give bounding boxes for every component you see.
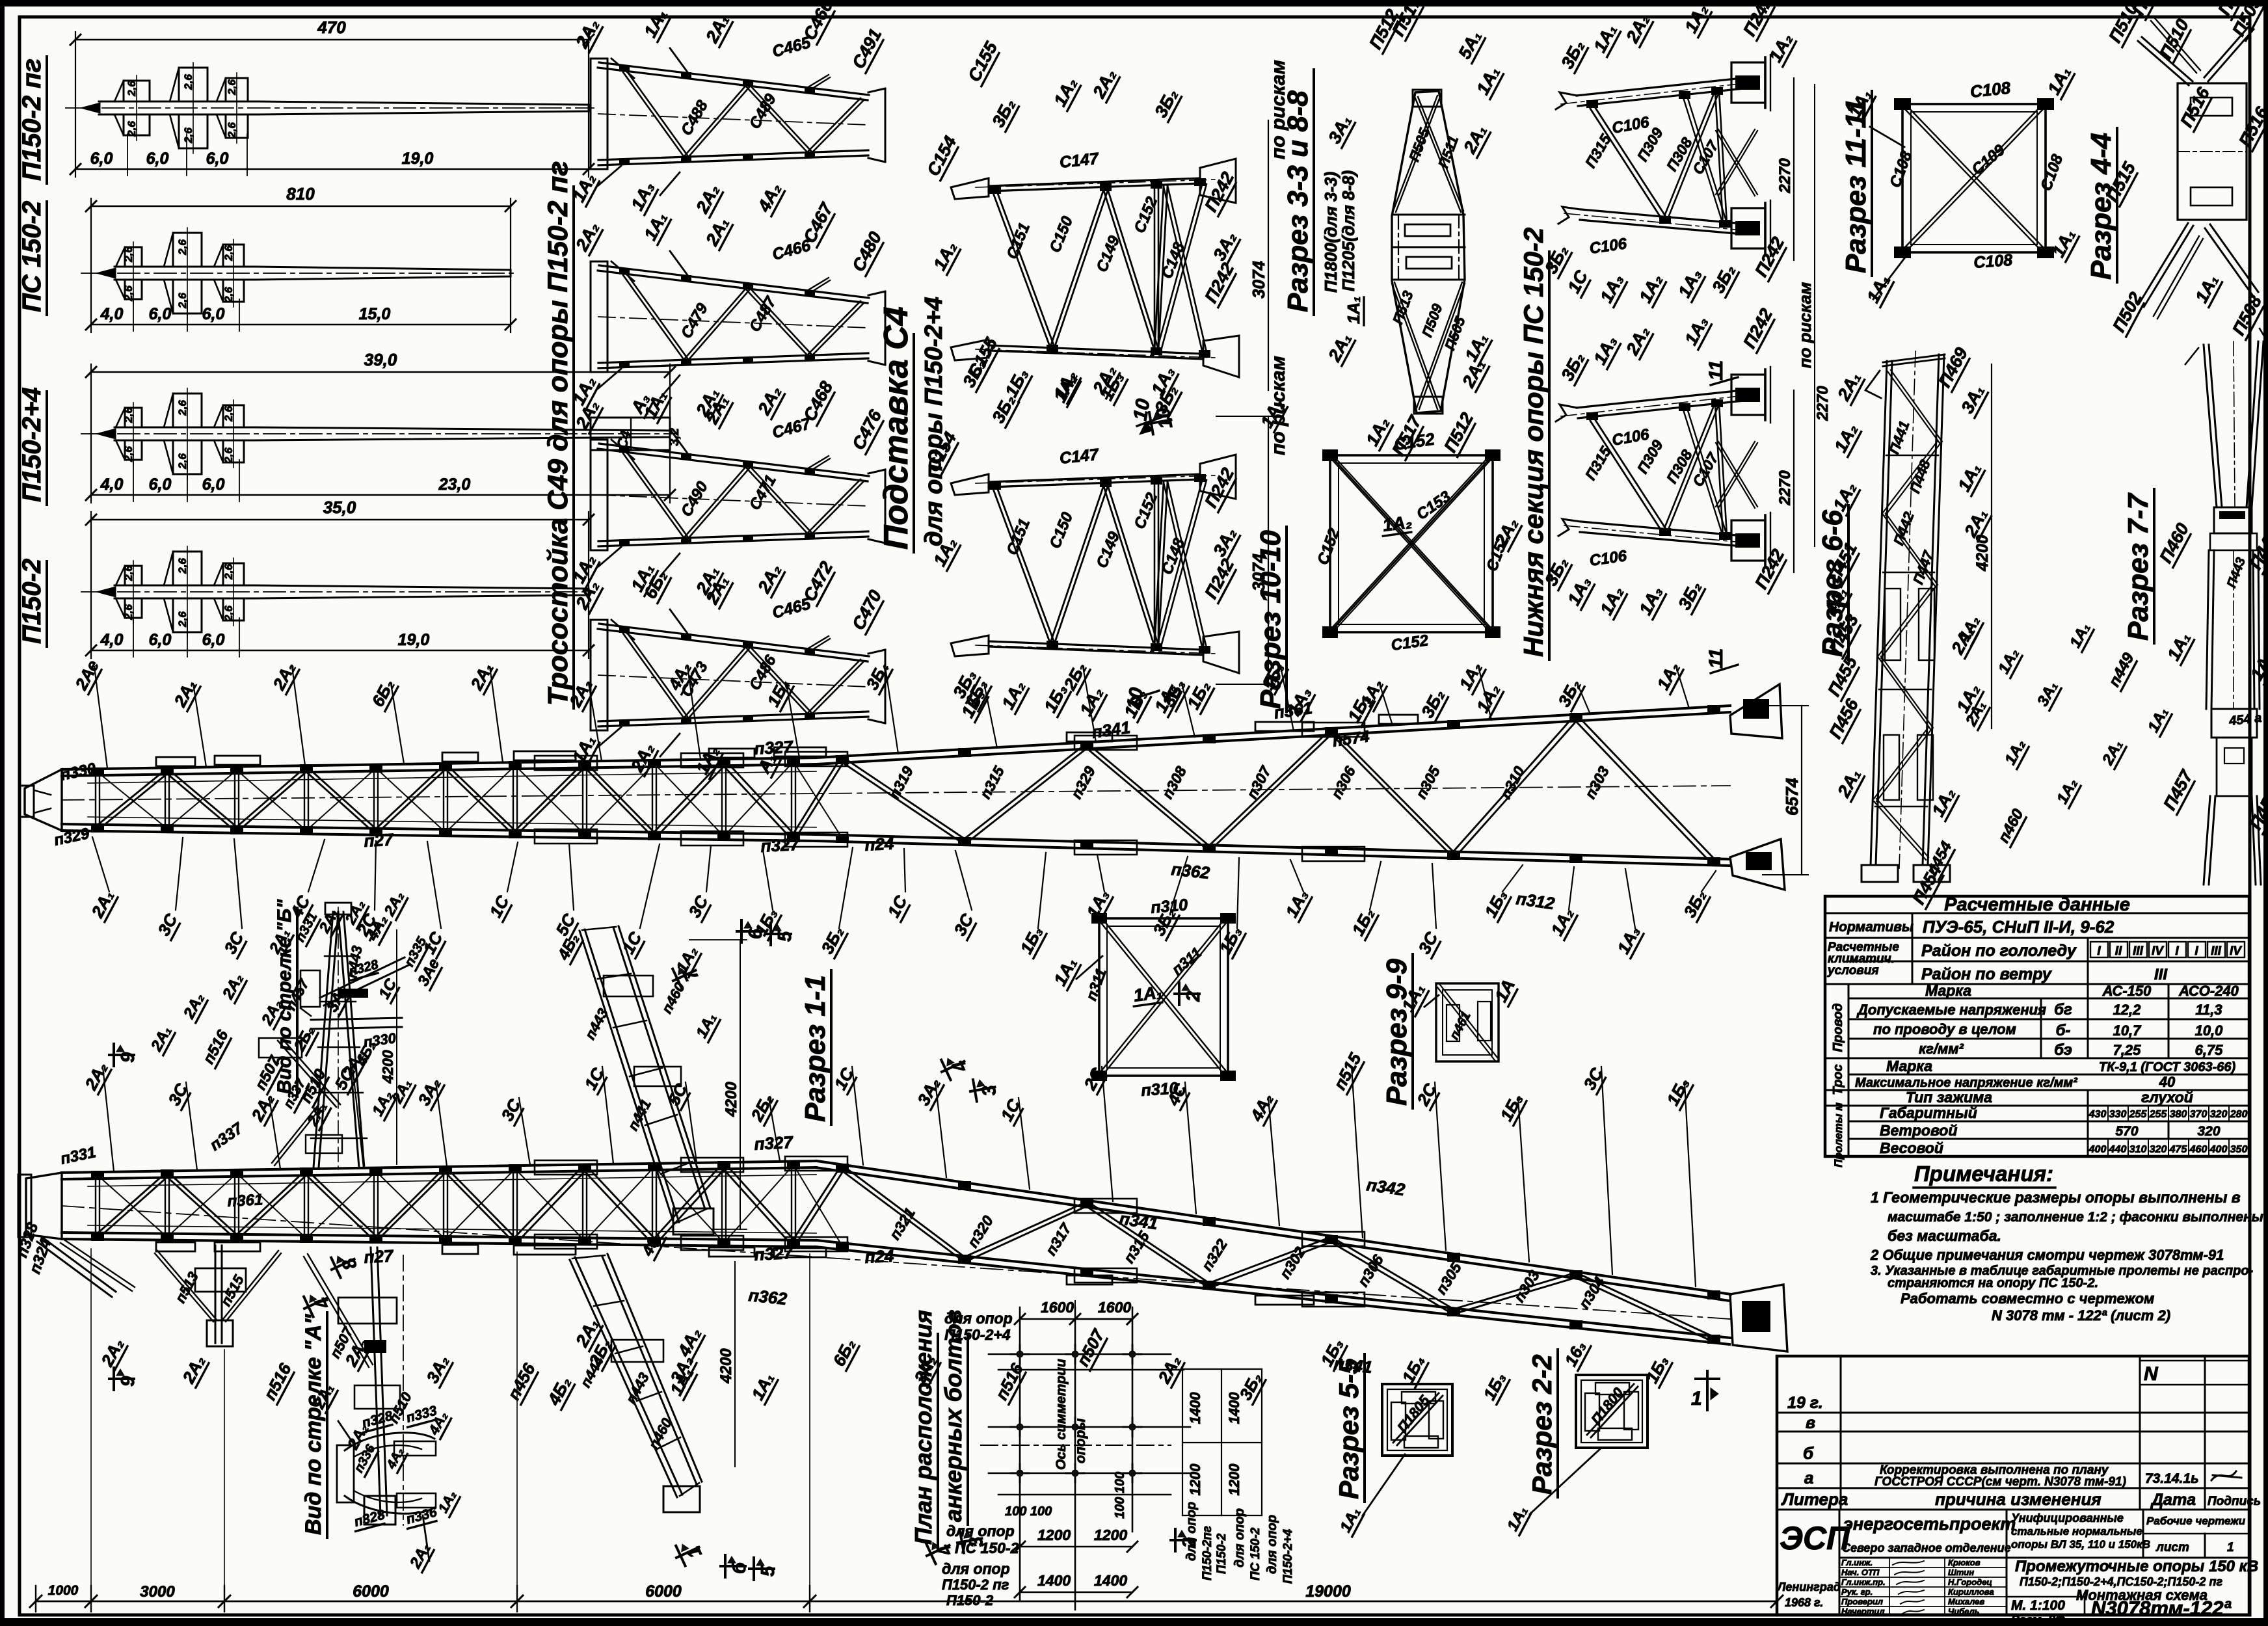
svg-text:П150-2+4: П150-2+4 [1281, 1529, 1295, 1584]
svg-text:п327: п327 [754, 1243, 794, 1264]
svg-text:ПС 150-2: ПС 150-2 [18, 201, 46, 312]
svg-text:6: 6 [745, 928, 766, 939]
svg-text:2 Общие примечания смотри: 2 Общие примечания смотри чертеж 3078тм-… [1870, 1247, 2224, 1263]
svg-text:5: 5 [775, 931, 795, 942]
svg-text:810: 810 [286, 184, 315, 204]
svg-text:ГОССТРОЯ СССР(см черт. N3078: ГОССТРОЯ СССР(см черт. N3078 тм-91) [1874, 1475, 2126, 1489]
svg-text:2,6: 2,6 [122, 565, 135, 581]
svg-text:6,75: 6,75 [2195, 1042, 2224, 1058]
svg-text:570: 570 [2115, 1124, 2138, 1139]
svg-text:1: 1 [2227, 1541, 2234, 1554]
svg-text:2: 2 [1183, 991, 1204, 1002]
svg-text:Штин: Штин [1948, 1567, 1974, 1577]
svg-text:Крюков: Крюков [1948, 1558, 1981, 1567]
svg-text:350: 350 [2230, 1144, 2248, 1155]
svg-text:11: 11 [1705, 360, 1727, 380]
svg-text:1200: 1200 [1226, 1463, 1242, 1496]
svg-text:П1800(для 3-3): П1800(для 3-3) [1321, 172, 1341, 293]
svg-text:страняются на опору ПС 150: страняются на опору ПС 150-2. [1888, 1276, 2098, 1290]
svg-text:1400: 1400 [1037, 1572, 1071, 1589]
svg-text:4200: 4200 [1973, 535, 1992, 572]
svg-text:Марка: Марка [1886, 1058, 1932, 1074]
svg-text:N3078тм-122ª: N3078тм-122ª [2091, 1597, 2232, 1619]
svg-text:4,0: 4,0 [100, 631, 124, 649]
svg-text:Провод: Провод [1831, 1004, 1845, 1052]
svg-text:1000: 1000 [48, 1583, 79, 1598]
svg-text:2,6: 2,6 [222, 606, 235, 622]
svg-text:Габаритный: Габаритный [1880, 1104, 1977, 1121]
svg-text:1200: 1200 [1187, 1463, 1203, 1496]
svg-text:опоры: опоры [1073, 1419, 1088, 1463]
svg-text:Рук. гр.: Рук. гр. [1841, 1587, 1873, 1597]
svg-text:2,6: 2,6 [176, 558, 189, 574]
svg-text:19000: 19000 [1305, 1582, 1351, 1601]
svg-text:масштабе 1:50 ; заполнение 1:2: масштабе 1:50 ; заполнение 1:2 ; фасонки… [1888, 1210, 2263, 1225]
svg-text:1400: 1400 [1094, 1572, 1127, 1589]
svg-text:п27: п27 [364, 1246, 395, 1267]
svg-text:Разрез 1-1: Разрез 1-1 [799, 975, 831, 1122]
svg-text:Подставка С4: Подставка С4 [877, 306, 915, 550]
svg-text:Разрез 11-11: Разрез 11-11 [1840, 99, 1872, 273]
svg-text:бэ: бэ [2054, 1041, 2072, 1059]
svg-text:Разрез 2-2: Разрез 2-2 [1527, 1354, 1557, 1495]
svg-text:III: III [2154, 966, 2168, 983]
svg-text:для опор: для опор [942, 1560, 1010, 1577]
svg-text:11,3: 11,3 [2195, 1002, 2222, 1018]
svg-text:I: I [2175, 944, 2179, 958]
svg-text:2270: 2270 [1814, 386, 1832, 421]
svg-text:по проводу в целом: по проводу в целом [1873, 1021, 2016, 1037]
svg-text:Район по ветру: Район по ветру [1921, 965, 2052, 983]
svg-text:6,0: 6,0 [149, 475, 172, 494]
svg-text:Марка: Марка [1925, 982, 1971, 999]
svg-text:п327: п327 [754, 1132, 794, 1154]
svg-text:6000: 6000 [353, 1582, 389, 1601]
svg-text:10: 10 [1153, 406, 1177, 430]
svg-text:I: I [2195, 944, 2198, 958]
svg-text:условия: условия [1827, 964, 1879, 978]
svg-text:39,0: 39,0 [364, 350, 397, 369]
svg-text:1: 1 [1691, 1388, 1702, 1409]
svg-text:п327: п327 [760, 834, 801, 856]
svg-text:11: 11 [1705, 648, 1727, 669]
svg-text:6000: 6000 [645, 1582, 682, 1601]
svg-text:ТК-9,1 (ГОСТ 3063-66): ТК-9,1 (ГОСТ 3063-66) [2099, 1060, 2236, 1074]
svg-text:С108: С108 [1973, 251, 2013, 272]
svg-text:2,6: 2,6 [222, 564, 235, 580]
svg-text:1600: 1600 [1041, 1299, 1074, 1316]
svg-text:6,0: 6,0 [202, 475, 225, 494]
svg-text:19 г.: 19 г. [1787, 1394, 1823, 1412]
svg-text:энергосетьпроект: энергосетьпроект [1843, 1514, 2016, 1534]
svg-text:475: 475 [2169, 1144, 2188, 1155]
svg-text:2,6: 2,6 [226, 122, 238, 139]
svg-text:Расчетные данные: Расчетные данные [1944, 894, 2130, 915]
svg-text:Вид по стрелке "А": Вид по стрелке "А" [301, 1314, 326, 1535]
svg-text:255: 255 [2149, 1109, 2168, 1120]
svg-text:для опор: для опор [944, 1310, 1013, 1327]
svg-text:4200: 4200 [723, 1082, 740, 1117]
svg-text:320: 320 [2210, 1109, 2228, 1120]
svg-text:а: а [1804, 1468, 1813, 1487]
svg-text:по рискам: по рискам [1795, 282, 1815, 368]
svg-text:10,7: 10,7 [2113, 1022, 2142, 1039]
svg-text:15,0: 15,0 [359, 305, 391, 323]
svg-text:2,6: 2,6 [122, 247, 135, 263]
svg-text:4,0: 4,0 [100, 305, 124, 323]
svg-text:п310: п310 [1150, 896, 1188, 917]
svg-text:6,0: 6,0 [206, 150, 229, 168]
svg-text:19,0: 19,0 [398, 631, 430, 649]
svg-text:Нормативы: Нормативы [1829, 920, 1914, 935]
svg-text:I: I [2097, 944, 2101, 958]
svg-text:Пролеты м: Пролеты м [1832, 1102, 1845, 1167]
svg-text:ПУЭ-65, СНиП II-И, 9-62: ПУЭ-65, СНиП II-И, 9-62 [1923, 917, 2115, 937]
svg-text:1 Геометрические размеры опоры: 1 Геометрические размеры опоры выполнены… [1871, 1189, 2241, 1206]
svg-text:400: 400 [2088, 1144, 2107, 1155]
svg-text:1968 г.: 1968 г. [1785, 1596, 1823, 1609]
svg-text:6,0: 6,0 [149, 305, 172, 323]
svg-text:АСО-240: АСО-240 [2178, 983, 2239, 999]
svg-text:Литера: Литера [1781, 1489, 1848, 1509]
svg-text:Весовой: Весовой [1880, 1140, 1943, 1156]
svg-text:для опор: для опор [1233, 1508, 1247, 1567]
svg-text:Разрез 3-3 и 8-8: Разрез 3-3 и 8-8 [1282, 90, 1314, 312]
svg-text:для опор: для опор [1184, 1502, 1199, 1561]
svg-text:Работать совместно с чертеж: Работать совместно с чертежом [1901, 1290, 2154, 1307]
svg-text:причина изменения: причина изменения [1935, 1489, 2101, 1509]
svg-text:N 3078 тм - 122ª (лист 2): N 3078 тм - 122ª (лист 2) [1992, 1307, 2170, 1324]
svg-text:6,0: 6,0 [202, 631, 225, 649]
svg-text:п362: п362 [1170, 859, 1211, 883]
svg-text:400: 400 [2209, 1144, 2228, 1155]
svg-text:Начертил: Начертил [1841, 1606, 1884, 1616]
svg-text:П1205(для 8-8): П1205(для 8-8) [1339, 170, 1358, 291]
svg-text:6574: 6574 [1782, 778, 1802, 816]
svg-text:П150-2+4: П150-2+4 [18, 387, 46, 502]
svg-text:для опор: для опор [1265, 1515, 1279, 1574]
svg-text:бг: бг [2054, 1001, 2072, 1019]
svg-text:1200: 1200 [1037, 1526, 1071, 1543]
svg-text:П150-2: П150-2 [18, 559, 46, 644]
svg-text:2270: 2270 [1776, 470, 1794, 506]
svg-text:без масштаба.: без масштаба. [1888, 1227, 2001, 1244]
svg-text:1600: 1600 [1098, 1299, 1131, 1316]
svg-text:1400: 1400 [1187, 1392, 1203, 1424]
svg-text:330: 330 [2109, 1109, 2127, 1120]
svg-text:IV: IV [2152, 944, 2164, 958]
svg-text:П150-2: П150-2 [1215, 1533, 1229, 1574]
svg-text:П150-2;П150-2+4,ПС150-2;П150-2: П150-2;П150-2+4,ПС150-2;П150-2 пг [2020, 1575, 2222, 1588]
svg-text:1400: 1400 [1226, 1392, 1242, 1424]
svg-text:Михалев: Михалев [1948, 1597, 1984, 1606]
svg-text:п362: п362 [747, 1285, 788, 1309]
svg-text:100 100: 100 100 [1113, 1472, 1127, 1519]
svg-text:4,0: 4,0 [100, 475, 124, 494]
svg-text:П150-2пг: П150-2пг [1201, 1526, 1214, 1580]
svg-text:План расположения: План расположения [910, 1310, 937, 1545]
svg-text:б-: б- [2056, 1022, 2071, 1039]
svg-text:II: II [2115, 944, 2122, 958]
svg-text:Вид по стрелке "Б": Вид по стрелке "Б" [274, 899, 295, 1094]
svg-text:Разрез 7-7: Разрез 7-7 [2122, 492, 2154, 641]
svg-text:2,6: 2,6 [226, 79, 238, 96]
svg-text:п24: п24 [864, 834, 895, 855]
svg-text:Ось симметрии: Ось симметрии [1054, 1359, 1069, 1470]
svg-text:Нижняя секция опоры ПС 150-2: Нижняя секция опоры ПС 150-2 [1518, 228, 1549, 657]
svg-text:III: III [2133, 944, 2144, 958]
svg-text:стальные нормальные: стальные нормальные [2011, 1525, 2142, 1538]
svg-text:19,0: 19,0 [402, 150, 434, 168]
svg-text:Допускаемые напряжения: Допускаемые напряжения [1856, 1002, 2046, 1018]
svg-text:Промежуточные опоры 150 кВ: Промежуточные опоры 150 кВ [2015, 1558, 2258, 1575]
svg-text:Тросостойка С49 для опоры П150: Тросостойка С49 для опоры П150-2 пг [542, 161, 574, 706]
svg-text:4200: 4200 [379, 1050, 396, 1084]
svg-text:Разрез 5-5: Разрез 5-5 [1333, 1359, 1364, 1499]
svg-text:Разрез 9-9: Разрез 9-9 [1381, 959, 1413, 1106]
svg-text:6,0: 6,0 [149, 631, 172, 649]
svg-text:Дата: Дата [2150, 1491, 2196, 1509]
svg-text:лист: лист [2155, 1541, 2189, 1554]
svg-text:2,6: 2,6 [222, 447, 235, 464]
svg-text:320: 320 [2197, 1124, 2220, 1139]
svg-text:2,6: 2,6 [222, 245, 235, 261]
svg-text:3074: 3074 [1249, 261, 1268, 299]
svg-text:кг/мм²: кг/мм² [1919, 1041, 1964, 1057]
svg-text:Ленинград: Ленинград [1776, 1580, 1841, 1593]
svg-text:Н.Городец: Н.Городец [1948, 1577, 1992, 1587]
svg-text:12,2: 12,2 [2113, 1002, 2142, 1018]
svg-text:73.14.1ь: 73.14.1ь [2145, 1471, 2199, 1486]
svg-text:Нач. ОТП: Нач. ОТП [1841, 1567, 1880, 1577]
svg-text:Максимальное напряжение кг/м: Максимальное напряжение кг/мм² [1855, 1076, 2078, 1090]
svg-text:п361: п361 [227, 1191, 263, 1210]
svg-text:2,6: 2,6 [182, 127, 194, 144]
svg-text:10,0: 10,0 [2195, 1022, 2224, 1039]
svg-text:Рабочие чертежи: Рабочие чертежи [2146, 1515, 2246, 1527]
svg-text:П150-2+4: П150-2+4 [944, 1326, 1011, 1343]
svg-text:2270: 2270 [1776, 158, 1794, 194]
svg-text:ЭСП: ЭСП [1780, 1520, 1850, 1556]
svg-text:6,0: 6,0 [146, 150, 169, 168]
svg-text:2,6: 2,6 [126, 81, 138, 97]
svg-text:255: 255 [2129, 1109, 2148, 1120]
svg-text:320: 320 [2150, 1144, 2167, 1155]
svg-text:в: в [1806, 1414, 1815, 1432]
svg-text:380: 380 [2170, 1109, 2187, 1120]
svg-text:Чибель: Чибель [1948, 1606, 1979, 1616]
svg-text:Разрез 4-4: Разрез 4-4 [2085, 133, 2117, 280]
svg-text:Примечания:: Примечания: [1914, 1162, 2053, 1186]
svg-text:1200: 1200 [1094, 1526, 1127, 1543]
svg-text:п327: п327 [754, 737, 794, 758]
svg-text:Тип зажима: Тип зажима [1906, 1089, 1992, 1106]
svg-text:9: 9 [118, 1376, 139, 1387]
svg-text:глухой: глухой [2141, 1089, 2193, 1106]
svg-text:б: б [729, 1562, 750, 1574]
svg-text:М. 1:100: М. 1:100 [2011, 1598, 2065, 1613]
svg-text:9: 9 [118, 1052, 139, 1063]
svg-text:ПС 150-2: ПС 150-2 [1249, 1527, 1262, 1580]
svg-text:430: 430 [2088, 1109, 2107, 1120]
svg-text:23,0: 23,0 [438, 475, 471, 494]
svg-text:Трос: Трос [1831, 1064, 1845, 1095]
svg-text:N: N [2144, 1363, 2159, 1385]
svg-text:2,6: 2,6 [182, 74, 194, 90]
svg-text:IV: IV [2230, 944, 2242, 958]
svg-text:470: 470 [317, 18, 346, 37]
svg-text:6,0: 6,0 [202, 305, 225, 323]
svg-text:б: б [1803, 1443, 1814, 1463]
svg-text:2,6: 2,6 [176, 400, 189, 416]
svg-text:АС-150: АС-150 [2102, 983, 2152, 999]
svg-text:для опоры П150-2+4: для опоры П150-2+4 [920, 297, 948, 546]
svg-text:1А₁: 1А₁ [1344, 297, 1363, 324]
svg-text:280: 280 [2230, 1109, 2248, 1120]
svg-text:Северо западное отделение: Северо западное отделение [1842, 1541, 2011, 1554]
svg-text:Унифицированные: Унифицированные [2011, 1512, 2124, 1525]
svg-text:Ветровой: Ветровой [1880, 1122, 1957, 1139]
svg-text:2,6: 2,6 [176, 239, 189, 256]
svg-text:П150-2 пг: П150-2 пг [942, 1577, 1009, 1593]
svg-text:п24: п24 [864, 1246, 895, 1267]
svg-text:Кириллова: Кириллова [1948, 1587, 1994, 1597]
svg-text:460: 460 [2189, 1144, 2208, 1155]
svg-text:2,6: 2,6 [122, 407, 135, 423]
svg-text:П150-2 пг: П150-2 пг [18, 59, 46, 181]
svg-text:3000: 3000 [140, 1583, 175, 1601]
svg-text:5: 5 [758, 1566, 779, 1577]
svg-text:Гл.инж.пр.: Гл.инж.пр. [1841, 1577, 1886, 1587]
svg-text:Гл.инж.: Гл.инж. [1841, 1558, 1873, 1567]
svg-text:III: III [2211, 944, 2222, 958]
svg-text:Проверил: Проверил [1841, 1597, 1883, 1606]
svg-text:Разм. 8Ф: Разм. 8Ф [2011, 1614, 2065, 1626]
svg-text:2: 2 [1179, 1538, 1200, 1549]
svg-text:35,0: 35,0 [323, 498, 356, 517]
svg-text:2,6: 2,6 [222, 287, 235, 303]
svg-text:370: 370 [2190, 1109, 2208, 1120]
svg-text:п310.: п310. [1140, 1079, 1183, 1100]
svg-text:2,6: 2,6 [222, 406, 235, 422]
svg-text:440: 440 [2109, 1144, 2127, 1155]
svg-text:6,0: 6,0 [90, 150, 113, 168]
svg-text:310: 310 [2129, 1144, 2147, 1155]
svg-text:4200: 4200 [717, 1348, 735, 1384]
svg-text:опоры ВЛ 35, 110 и 150кВ: опоры ВЛ 35, 110 и 150кВ [2011, 1538, 2150, 1551]
svg-text:40: 40 [2159, 1074, 2176, 1090]
svg-text:п27: п27 [364, 830, 395, 851]
svg-text:П150-2: П150-2 [946, 1592, 994, 1608]
svg-text:100 100: 100 100 [1005, 1504, 1052, 1519]
svg-text:Подпись: Подпись [2208, 1495, 2261, 1508]
svg-text:Район по гололеду: Район по гололеду [1921, 942, 2077, 960]
svg-text:7,25: 7,25 [2113, 1042, 2142, 1058]
